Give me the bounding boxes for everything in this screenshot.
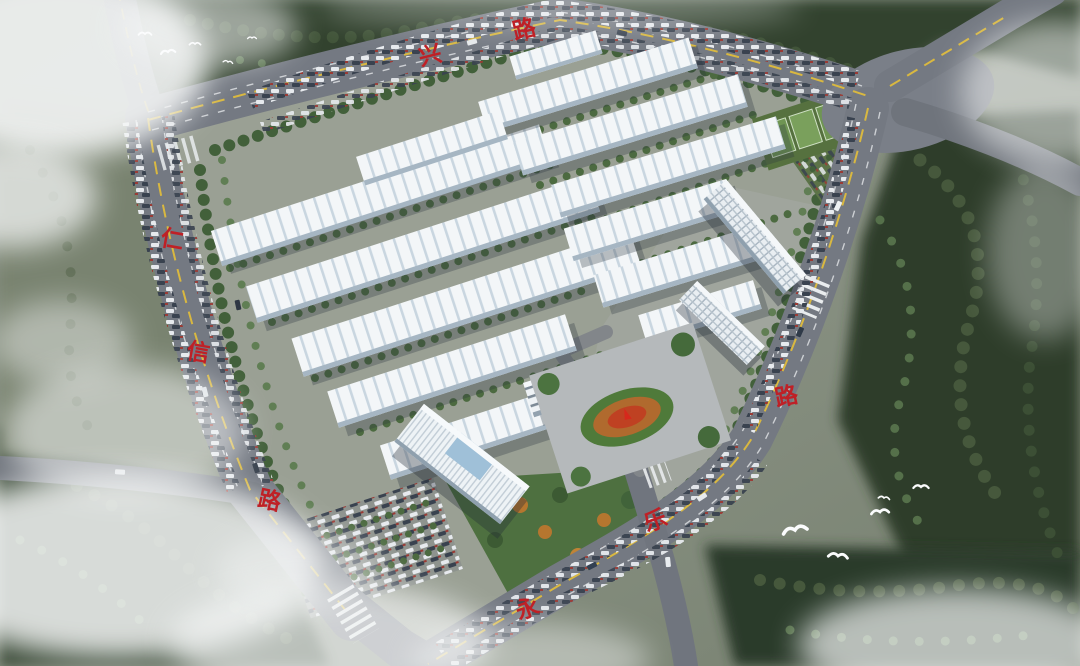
scene-svg: 仁 信 路 兴 路 永 乐 路 [0, 0, 1080, 666]
road-label: 仁 [159, 224, 186, 255]
road-label: 信 [185, 337, 212, 368]
aerial-rendering-canvas: 仁 信 路 兴 路 永 乐 路 [0, 0, 1080, 666]
